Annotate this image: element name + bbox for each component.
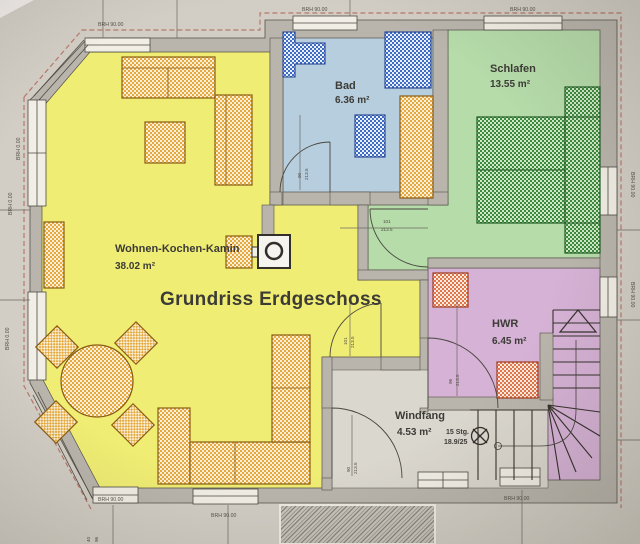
coffee-table [145,122,185,163]
svg-text:96: 96 [448,378,453,384]
svg-text:BRH 90.00: BRH 90.00 [510,7,535,13]
kamin-chimney-icon [252,235,290,268]
floorplan-photo: Wohnen-Kochen-Kamin 38.02 m² Bad 6.36 m²… [0,0,640,544]
hwr-label: HWR [492,318,518,330]
sideboard [44,222,64,288]
wohnen-label: Wohnen-Kochen-Kamin [115,243,240,255]
entrance-steps-hatch [280,505,435,544]
window-bad-top [293,16,357,30]
svg-text:213.5: 213.5 [350,336,355,348]
appliance-1 [433,273,468,307]
window-top-left [85,38,150,52]
window-right-upper [600,167,617,215]
svg-text:101: 101 [383,219,391,224]
dining-table [61,345,133,417]
svg-text:213.5: 213.5 [381,227,393,232]
svg-text:BRH 0.00: BRH 0.00 [5,327,11,350]
window-bottom-right [500,468,540,486]
bad-area: 6.36 m² [335,95,370,106]
svg-text:213.5: 213.5 [353,462,358,474]
svg-text:96: 96 [94,536,99,542]
wohnen-area: 38.02 m² [115,261,156,272]
stairs-ratio: 18.9/25 [444,439,467,446]
appliance-2 [497,362,538,398]
window-schlafen-top [484,16,562,30]
schlafen-area: 13.55 m² [490,79,531,90]
sofa-horizontal [122,57,215,98]
schlafen-label: Schlafen [490,63,536,75]
svg-text:BRH 90.00: BRH 90.00 [629,172,635,197]
entrance-door-window [418,472,468,488]
svg-text:BRH 90.00: BRH 90.00 [504,496,529,502]
shower [385,32,431,88]
floorplan-drawing: Wohnen-Kochen-Kamin 38.02 m² Bad 6.36 m²… [0,0,640,544]
bad-label: Bad [335,80,356,92]
svg-text:BRH 90.00: BRH 90.00 [302,7,327,13]
window-right-lower [600,277,617,317]
svg-text:213.5: 213.5 [455,374,460,386]
page-title: Grundriss Erdgeschoss [160,289,382,310]
hwr-area: 6.45 m² [492,336,527,347]
svg-text:40: 40 [86,536,91,542]
svg-text:90: 90 [297,172,302,178]
svg-text:213.5: 213.5 [304,168,309,180]
svg-text:BRH 0.00: BRH 0.00 [16,137,22,160]
windfang-area: 4.53 m² [397,427,432,438]
svg-text:90: 90 [346,466,351,472]
svg-text:BRH 90.00: BRH 90.00 [98,497,123,503]
svg-text:BRH 90.00: BRH 90.00 [629,282,635,307]
stairs-count: 15 Stg. [446,429,469,436]
windfang-label: Windfang [395,410,445,422]
svg-text:101: 101 [343,337,348,345]
window-left-upper [28,100,46,206]
toilet [355,115,385,157]
svg-text:BRH 0.00: BRH 0.00 [8,192,14,215]
bed-headboard [565,87,600,253]
window-bottom-mid [193,489,258,504]
sofa-vertical [215,95,252,185]
window-left-lower [28,292,46,380]
svg-text:BRH 90.00: BRH 90.00 [211,513,236,519]
svg-text:BRH 90.00: BRH 90.00 [98,22,123,28]
wardrobe [400,96,433,198]
